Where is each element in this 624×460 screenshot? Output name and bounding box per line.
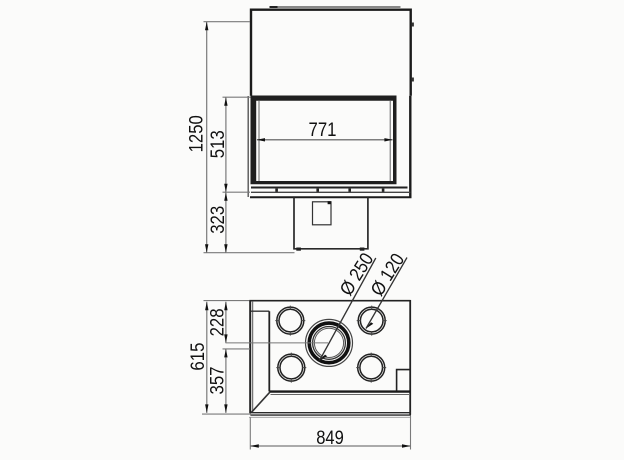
svg-text:357: 357	[208, 367, 229, 395]
svg-text:771: 771	[309, 120, 337, 141]
svg-text:849: 849	[316, 428, 344, 449]
svg-text:615: 615	[188, 343, 209, 371]
svg-text:323: 323	[208, 206, 229, 234]
svg-text:228: 228	[208, 308, 229, 336]
svg-text:1250: 1250	[187, 115, 208, 152]
svg-text:513: 513	[208, 130, 229, 158]
